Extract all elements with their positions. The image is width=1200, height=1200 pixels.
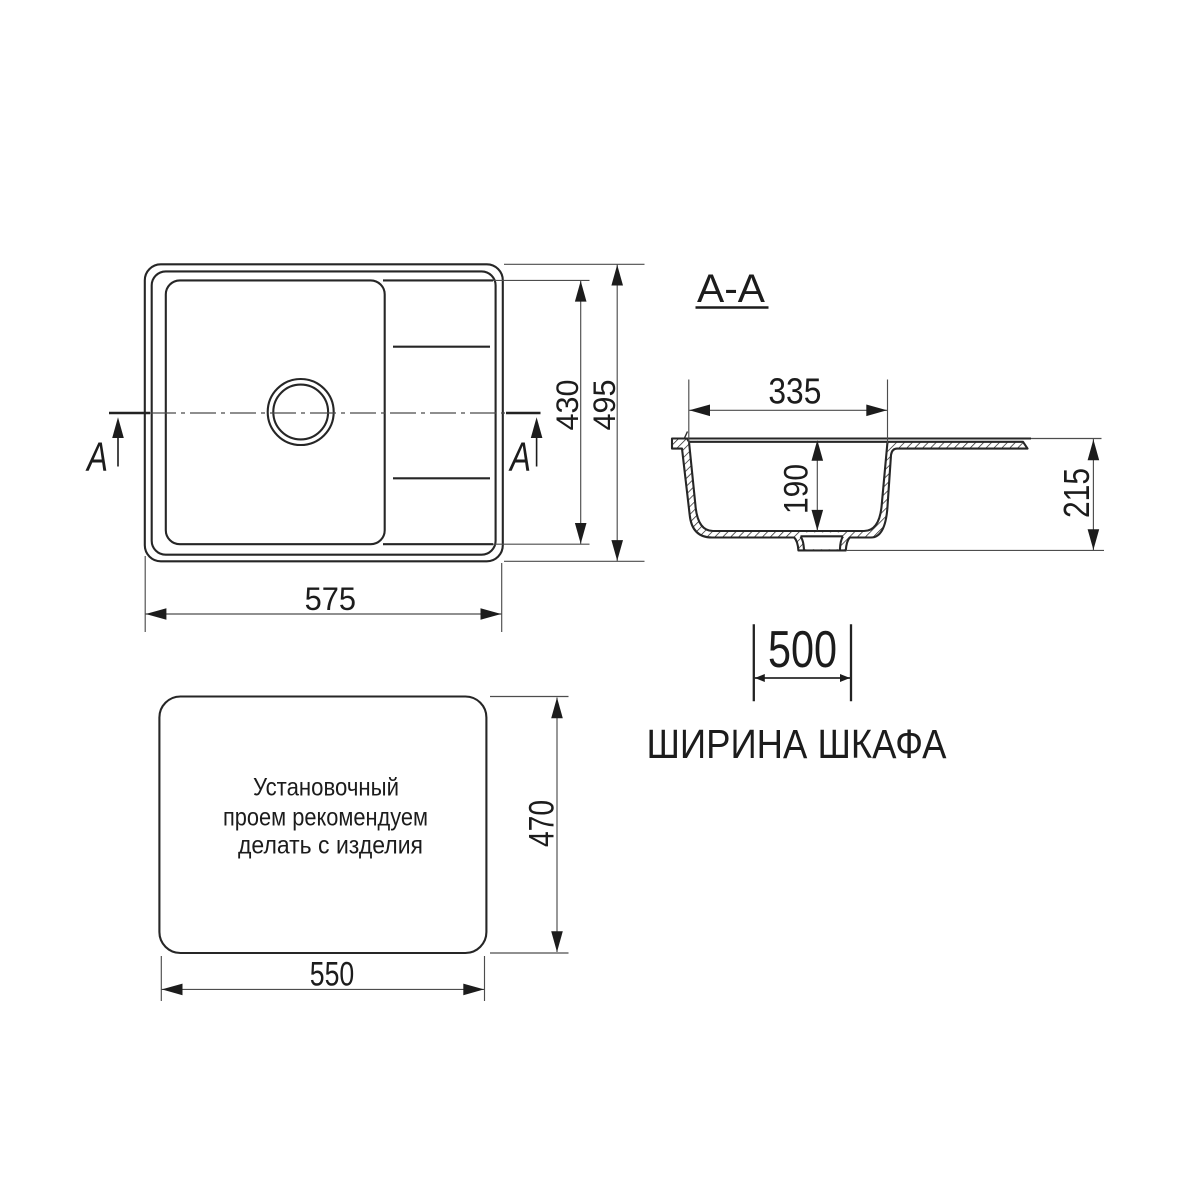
svg-text:A-A: A-A <box>697 267 765 311</box>
svg-text:Установочный: Установочный <box>253 774 399 802</box>
svg-text:проем рекомендуем: проем рекомендуем <box>223 804 428 832</box>
svg-text:575: 575 <box>305 581 356 617</box>
svg-text:A: A <box>508 434 531 480</box>
svg-text:190: 190 <box>778 464 816 514</box>
svg-text:470: 470 <box>523 800 562 847</box>
svg-text:ШИРИНА ШКАФА: ШИРИНА ШКАФА <box>647 721 948 767</box>
svg-text:495: 495 <box>586 380 622 431</box>
svg-text:335: 335 <box>768 370 821 411</box>
svg-text:делать с изделия: делать с изделия <box>238 832 423 860</box>
svg-text:500: 500 <box>768 621 837 679</box>
svg-text:A: A <box>85 434 108 480</box>
svg-text:550: 550 <box>310 956 355 994</box>
svg-text:215: 215 <box>1056 468 1097 518</box>
svg-text:430: 430 <box>549 380 585 431</box>
